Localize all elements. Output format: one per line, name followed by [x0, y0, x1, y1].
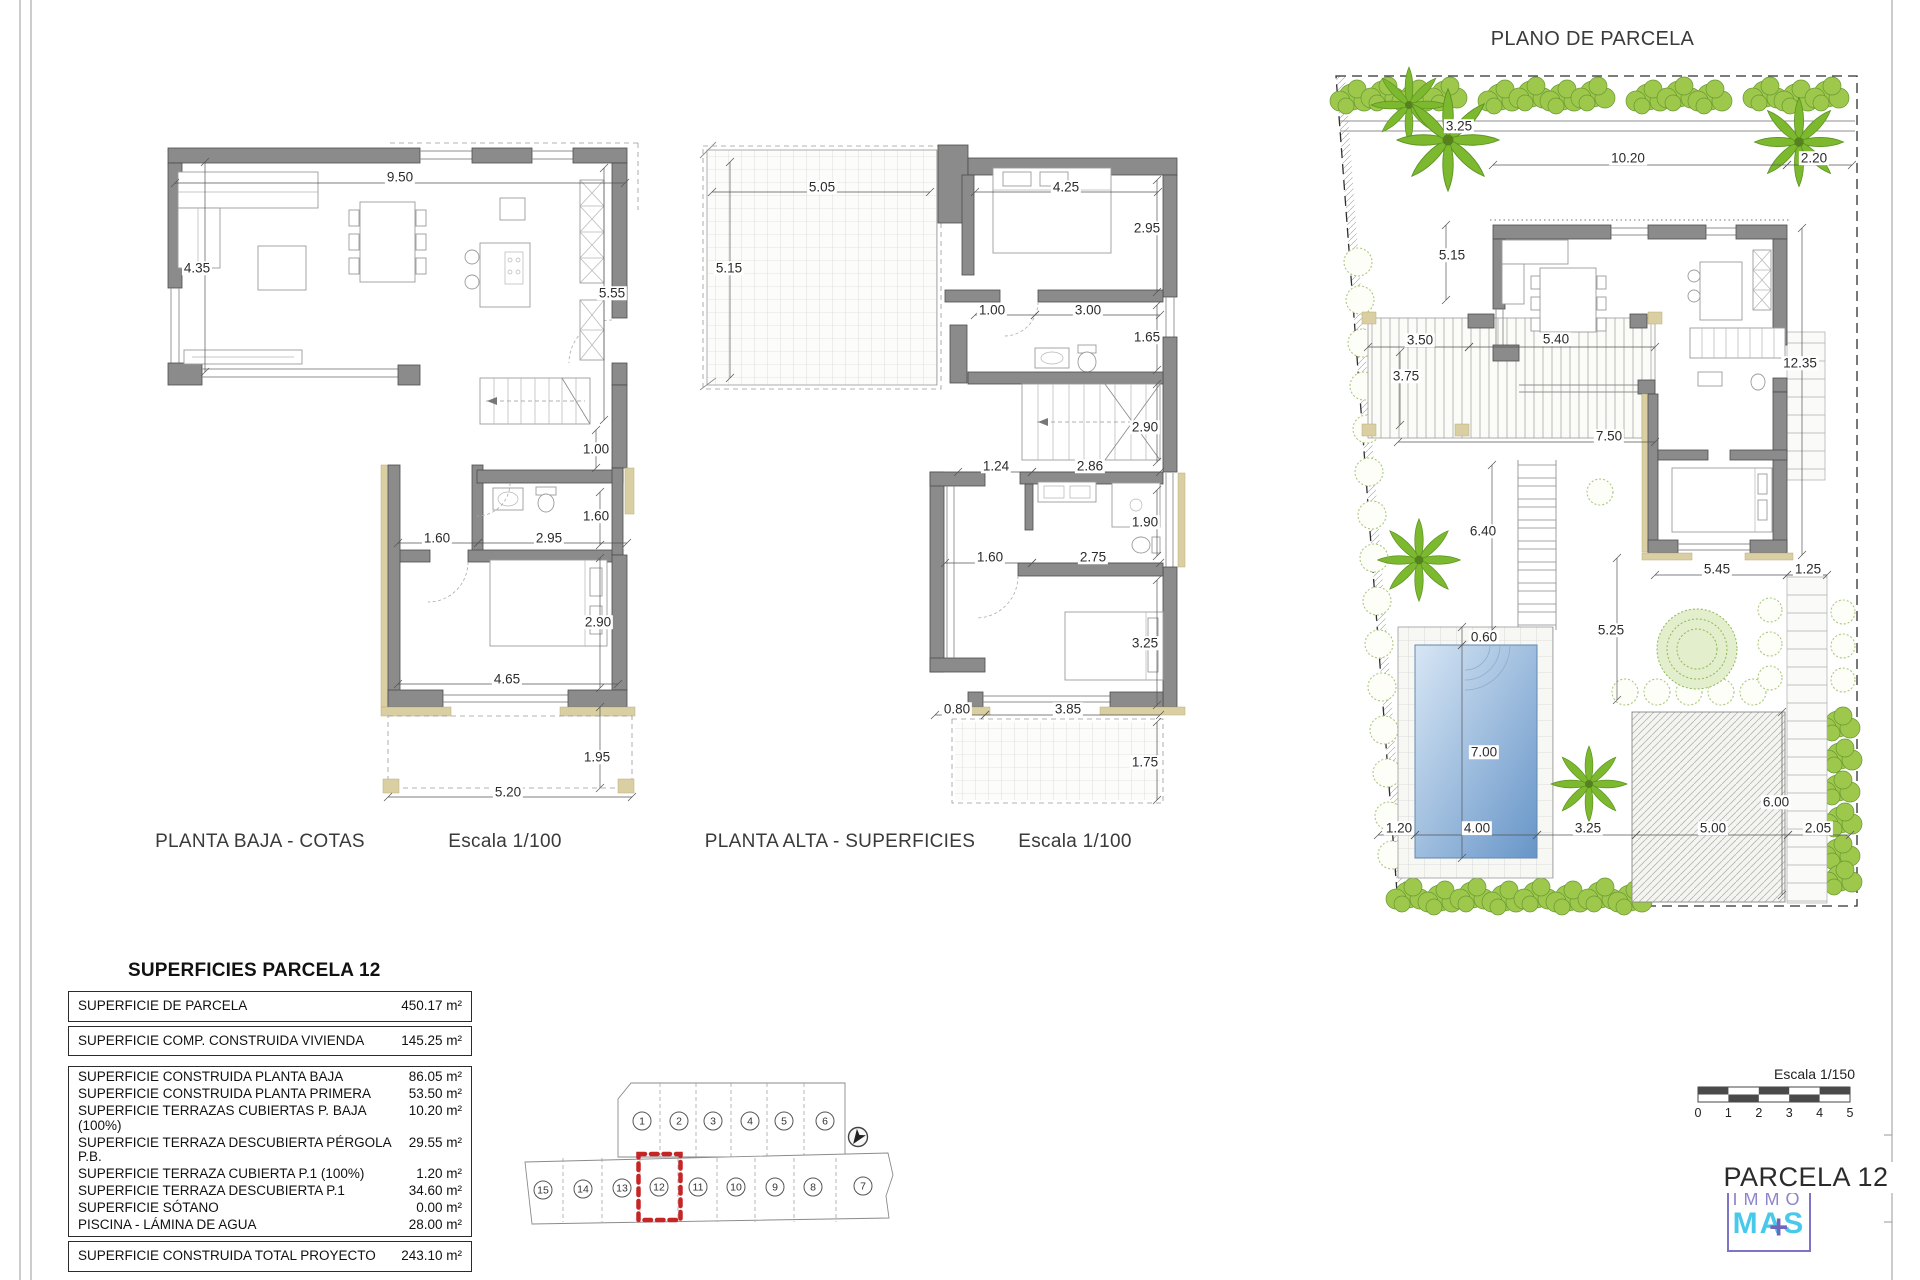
parcel-title: PARCELA 12 [1706, 1162, 1906, 1193]
plot-number-2: 2 [670, 1112, 689, 1131]
dimension-label-planta_alta: 0.80 [942, 702, 972, 716]
dimension-label-parcela: 5.15 [1437, 248, 1467, 262]
plan-sheet: 9.504.355.551.001.602.951.602.904.651.95… [0, 0, 1920, 1280]
area-row: SUPERFICIE COMP. CONSTRUIDA VIVIENDA145.… [69, 1029, 471, 1054]
planta-alta-title: PLANTA ALTA - SUPERFICIES [690, 831, 990, 853]
dimension-label-parcela: 7.00 [1469, 745, 1499, 759]
plot-number-4: 4 [741, 1112, 760, 1131]
dimension-label-parcela: 1.25 [1793, 562, 1823, 576]
dimension-label-planta_alta: 1.60 [975, 550, 1005, 564]
area-value: 243.10 m² [401, 1249, 462, 1264]
scale-tick: 3 [1786, 1106, 1793, 1120]
scale-tick: 2 [1755, 1106, 1762, 1120]
dimension-label-planta_baja: 1.95 [582, 750, 612, 764]
area-row: SUPERFICIE TERRAZA DESCUBIERTA PÉRGOLA P… [69, 1135, 471, 1167]
area-value: 34.60 m² [409, 1184, 462, 1199]
area-value: 10.20 m² [409, 1104, 462, 1133]
dimension-label-parcela: 3.25 [1444, 119, 1474, 133]
plot-number-5: 5 [775, 1112, 794, 1131]
plot-number-10: 10 [727, 1178, 746, 1197]
plot-number-6: 6 [816, 1112, 835, 1131]
area-value: 86.05 m² [409, 1070, 462, 1085]
planta-baja-scale: Escala 1/100 [420, 831, 590, 853]
scale-tick: 5 [1847, 1106, 1854, 1120]
area-row: SUPERFICIE CONSTRUIDA PLANTA BAJA86.05 m… [69, 1069, 471, 1086]
area-label: SUPERFICIE TERRAZA CUBIERTA P.1 (100%) [78, 1167, 364, 1182]
dimension-label-planta_baja: 1.60 [581, 509, 611, 523]
plot-number-8: 8 [804, 1178, 823, 1197]
area-row: SUPERFICIE TERRAZA CUBIERTA P.1 (100%)1.… [69, 1166, 471, 1183]
dimension-label-planta_alta: 3.00 [1073, 303, 1103, 317]
dimension-label-parcela: 12.35 [1781, 356, 1819, 370]
dimension-label-planta_alta: 2.95 [1132, 221, 1162, 235]
area-value: 1.20 m² [416, 1167, 462, 1182]
dimension-label-parcela: 10.20 [1609, 151, 1647, 165]
dimension-label-planta_baja: 4.65 [492, 672, 522, 686]
plot-number-9: 9 [766, 1178, 785, 1197]
dimension-label-planta_alta: 1.00 [977, 303, 1007, 317]
area-label: SUPERFICIE CONSTRUIDA PLANTA BAJA [78, 1070, 343, 1085]
area-label: SUPERFICIE TERRAZAS CUBIERTAS P. BAJA (1… [78, 1104, 409, 1133]
scale-tick: 4 [1816, 1106, 1823, 1120]
plot-map-drawing [525, 1083, 893, 1224]
plot-number-1: 1 [633, 1112, 652, 1131]
area-label: SUPERFICIE DE PARCELA [78, 999, 247, 1014]
dimension-label-planta_baja: 2.95 [534, 531, 564, 545]
dimension-label-parcela: 5.25 [1596, 623, 1626, 637]
area-value: 53.50 m² [409, 1087, 462, 1102]
plot-number-12: 12 [650, 1178, 669, 1197]
plot-number-11: 11 [689, 1178, 708, 1197]
area-value: 0.00 m² [416, 1201, 462, 1216]
areas-table-group: SUPERFICIE CONSTRUIDA PLANTA BAJA86.05 m… [68, 1066, 472, 1237]
dimension-label-parcela: 5.40 [1541, 332, 1571, 346]
dimension-label-planta_alta: 5.05 [807, 180, 837, 194]
dimension-label-planta_alta: 1.24 [981, 459, 1011, 473]
dimension-label-parcela: 3.75 [1391, 369, 1421, 383]
areas-table-group: SUPERFICIE DE PARCELA450.17 m² [68, 991, 472, 1022]
dimension-label-parcela: 5.00 [1698, 821, 1728, 835]
dimension-label-parcela: 7.50 [1594, 429, 1624, 443]
area-row: SUPERFICIE SÓTANO0.00 m² [69, 1200, 471, 1217]
area-label: PISCINA - LÁMINA DE AGUA [78, 1218, 257, 1233]
dimension-label-parcela: 4.00 [1462, 821, 1492, 835]
dimension-label-planta_alta: 4.25 [1051, 180, 1081, 194]
dimension-label-planta_baja: 4.35 [182, 261, 212, 275]
dimension-label-planta_baja: 9.50 [385, 170, 415, 184]
plot-number-7: 7 [854, 1177, 873, 1196]
dimension-label-planta_alta: 5.15 [714, 261, 744, 275]
logo-plus-icon: + [1769, 1208, 1788, 1246]
dimension-label-planta_baja: 5.20 [493, 785, 523, 799]
areas-table-group: SUPERFICIE CONSTRUIDA TOTAL PROYECTO243.… [68, 1241, 472, 1272]
dimension-label-planta_alta: 3.85 [1053, 702, 1083, 716]
areas-table-group: SUPERFICIE COMP. CONSTRUIDA VIVIENDA145.… [68, 1026, 472, 1057]
dimension-label-parcela: 2.05 [1803, 821, 1833, 835]
scale-tick: 0 [1695, 1106, 1702, 1120]
dimension-label-planta_baja: 5.55 [597, 286, 627, 300]
area-row: SUPERFICIE TERRAZAS CUBIERTAS P. BAJA (1… [69, 1103, 471, 1135]
dimension-label-planta_baja: 2.90 [583, 615, 613, 629]
planta-baja-title: PLANTA BAJA - COTAS [140, 831, 380, 853]
area-label: SUPERFICIE CONSTRUIDA TOTAL PROYECTO [78, 1249, 376, 1264]
area-value: 29.55 m² [409, 1136, 462, 1165]
dimension-label-planta_alta: 1.75 [1130, 755, 1160, 769]
area-row: SUPERFICIE DE PARCELA450.17 m² [69, 994, 471, 1019]
dimension-label-planta_alta: 2.86 [1075, 459, 1105, 473]
area-label: SUPERFICIE TERRAZA DESCUBIERTA PÉRGOLA P… [78, 1136, 409, 1165]
dimension-label-planta_alta: 2.75 [1078, 550, 1108, 564]
area-value: 450.17 m² [401, 999, 462, 1014]
plot-number-3: 3 [704, 1112, 723, 1131]
dimension-label-parcela: 6.40 [1468, 524, 1498, 538]
dimension-label-planta_alta: 1.65 [1132, 330, 1162, 344]
area-label: SUPERFICIE SÓTANO [78, 1201, 219, 1216]
dimension-label-parcela: 2.20 [1799, 151, 1829, 165]
dimension-label-planta_alta: 1.90 [1130, 515, 1160, 529]
area-row: SUPERFICIE TERRAZA DESCUBIERTA P.134.60 … [69, 1183, 471, 1200]
planta-baja-drawing [168, 143, 638, 793]
dimension-label-planta_baja: 1.00 [581, 442, 611, 456]
dimension-label-planta_alta: 3.25 [1130, 636, 1160, 650]
planta-alta-scale: Escala 1/100 [990, 831, 1160, 853]
area-label: SUPERFICIE TERRAZA DESCUBIERTA P.1 [78, 1184, 345, 1199]
area-row: SUPERFICIE CONSTRUIDA TOTAL PROYECTO243.… [69, 1244, 471, 1269]
area-row: SUPERFICIE CONSTRUIDA PLANTA PRIMERA53.5… [69, 1086, 471, 1103]
areas-table-title: SUPERFICIES PARCELA 12 [68, 960, 472, 982]
scale-150-label: Escala 1/150 [1740, 1066, 1855, 1082]
areas-table: SUPERFICIES PARCELA 12 SUPERFICIE DE PAR… [68, 960, 472, 1276]
dimension-label-planta_baja: 1.60 [422, 531, 452, 545]
dimension-label-parcela: 3.25 [1573, 821, 1603, 835]
dimension-label-parcela: 5.45 [1702, 562, 1732, 576]
area-value: 145.25 m² [401, 1034, 462, 1049]
area-label: SUPERFICIE COMP. CONSTRUIDA VIVIENDA [78, 1034, 364, 1049]
dimension-label-parcela: 0.60 [1469, 630, 1499, 644]
dimension-label-parcela: 3.50 [1405, 333, 1435, 347]
plot-number-13: 13 [613, 1179, 632, 1198]
plot-number-15: 15 [534, 1181, 553, 1200]
area-row: PISCINA - LÁMINA DE AGUA28.00 m² [69, 1217, 471, 1234]
area-value: 28.00 m² [409, 1218, 462, 1233]
area-label: SUPERFICIE CONSTRUIDA PLANTA PRIMERA [78, 1087, 371, 1102]
north-arrow-icon [849, 1128, 868, 1148]
scale-bar [1698, 1087, 1850, 1102]
plot-number-14: 14 [574, 1180, 593, 1199]
plano-parcela-title: PLANO DE PARCELA [1440, 28, 1745, 51]
areas-table-body: SUPERFICIE DE PARCELA450.17 m²SUPERFICIE… [68, 991, 472, 1272]
dimension-label-parcela: 1.20 [1384, 821, 1414, 835]
scale-tick: 1 [1725, 1106, 1732, 1120]
dimension-label-parcela: 6.00 [1761, 795, 1791, 809]
dimension-label-planta_alta: 2.90 [1130, 420, 1160, 434]
